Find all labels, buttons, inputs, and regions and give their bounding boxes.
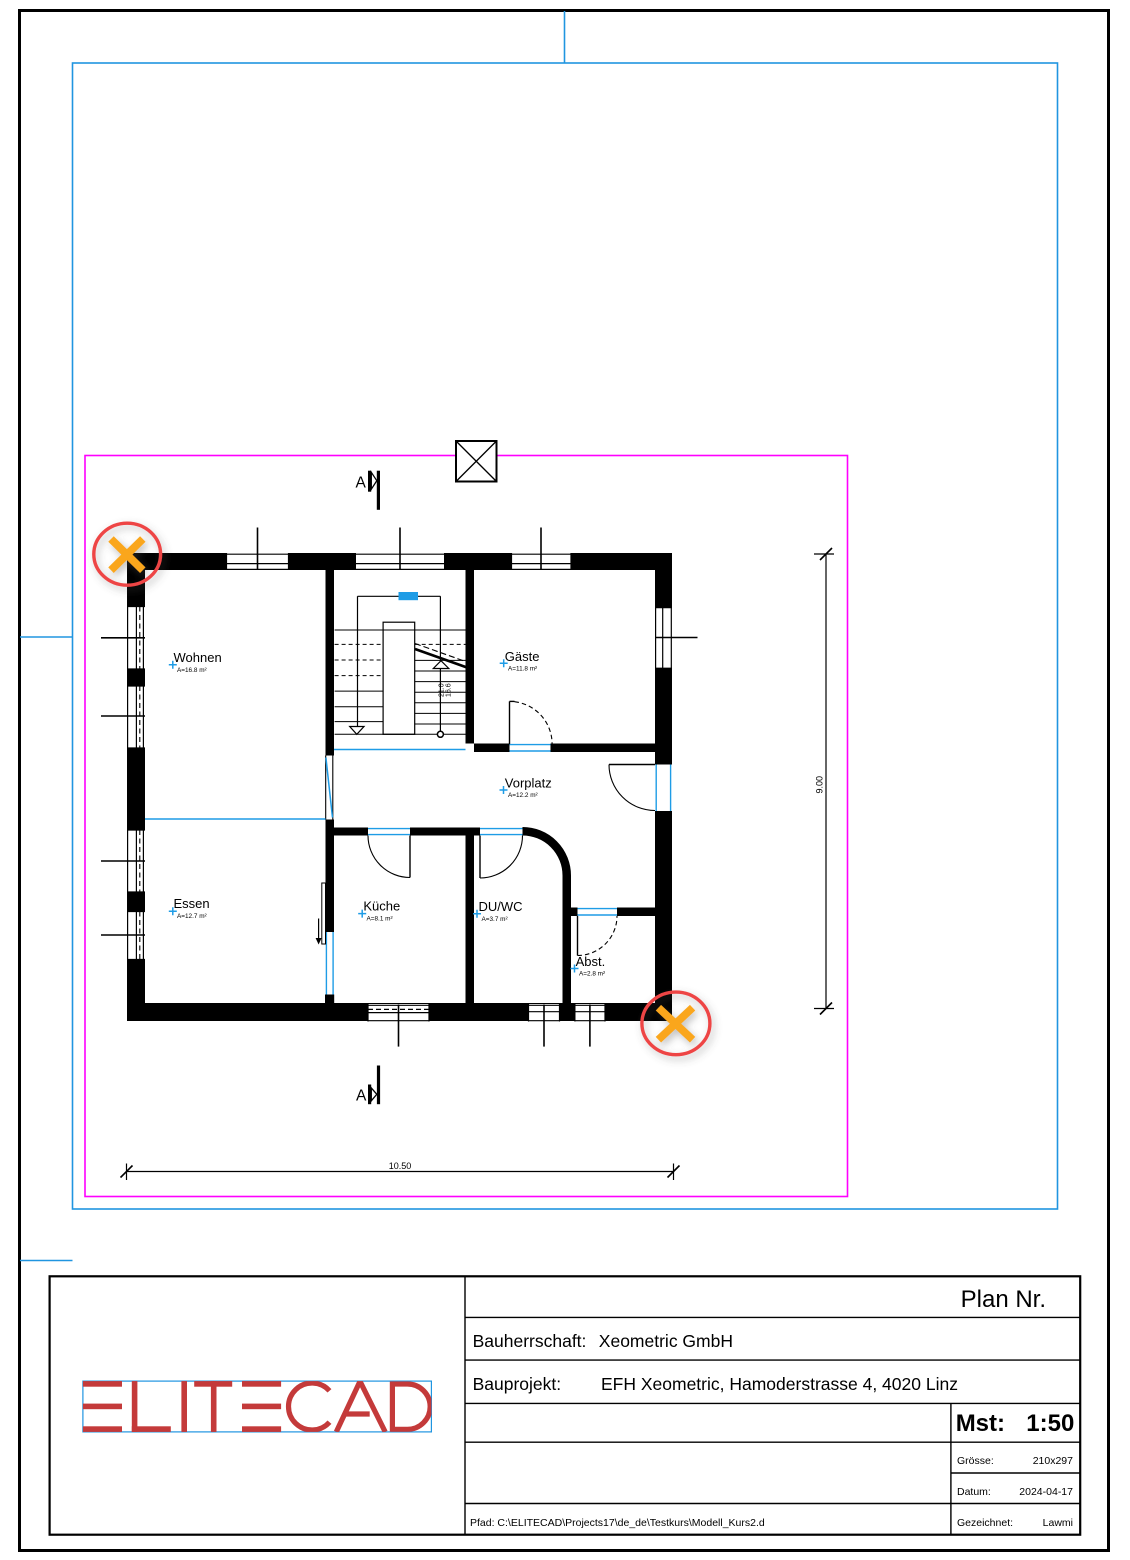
svg-text:A: A: [356, 1087, 367, 1104]
svg-text:Essen: Essen: [174, 896, 210, 911]
svg-text:A: A: [356, 474, 367, 491]
svg-text:Mst:: Mst:: [956, 1410, 1005, 1437]
svg-text:Küche: Küche: [363, 899, 400, 914]
svg-text:Vorplatz: Vorplatz: [505, 776, 552, 791]
svg-text:10.50: 10.50: [389, 1161, 412, 1171]
svg-text:Datum:: Datum:: [957, 1486, 991, 1498]
svg-text:1:50: 1:50: [1026, 1410, 1074, 1437]
svg-text:Abst.: Abst.: [576, 954, 606, 969]
svg-text:A=12.7 m²: A=12.7 m²: [177, 913, 207, 920]
svg-text:EFH Xeometric, Hamoderstrasse: EFH Xeometric, Hamoderstrasse 4, 4020 Li…: [601, 1374, 958, 1394]
svg-text:Grösse:: Grösse:: [957, 1455, 994, 1467]
svg-text:Bauherrschaft:: Bauherrschaft:: [473, 1331, 587, 1351]
svg-text:A=11.8 m²: A=11.8 m²: [508, 665, 537, 672]
svg-text:Xeometric GmbH: Xeometric GmbH: [599, 1331, 733, 1351]
svg-text:16.6: 16.6: [446, 683, 453, 697]
svg-text:A=2.8 m²: A=2.8 m²: [579, 971, 605, 978]
svg-text:DU/WC: DU/WC: [479, 899, 523, 914]
svg-text:210x297: 210x297: [1033, 1455, 1073, 1467]
svg-text:Bauprojekt:: Bauprojekt:: [473, 1374, 562, 1394]
svg-text:A=12.2 m²: A=12.2 m²: [508, 792, 538, 799]
svg-text:Pfad: C:\ELITECAD\Projects17\: Pfad: C:\ELITECAD\Projects17\de_de\Testk…: [470, 1517, 765, 1529]
svg-text:Lawmi: Lawmi: [1043, 1517, 1073, 1529]
svg-text:Gezeichnet:: Gezeichnet:: [957, 1517, 1013, 1529]
svg-text:Wohnen: Wohnen: [174, 650, 222, 665]
svg-text:9.00: 9.00: [815, 776, 825, 794]
svg-text:A=3.7 m²: A=3.7 m²: [482, 916, 508, 923]
svg-text:A=8.1 m²: A=8.1 m²: [367, 916, 393, 923]
svg-text:21.0: 21.0: [439, 683, 446, 697]
svg-text:A=16.8 m²: A=16.8 m²: [177, 667, 207, 674]
svg-text:Plan Nr.: Plan Nr.: [961, 1286, 1046, 1313]
svg-text:2024-04-17: 2024-04-17: [1019, 1486, 1073, 1498]
svg-text:Gäste: Gäste: [505, 649, 540, 664]
